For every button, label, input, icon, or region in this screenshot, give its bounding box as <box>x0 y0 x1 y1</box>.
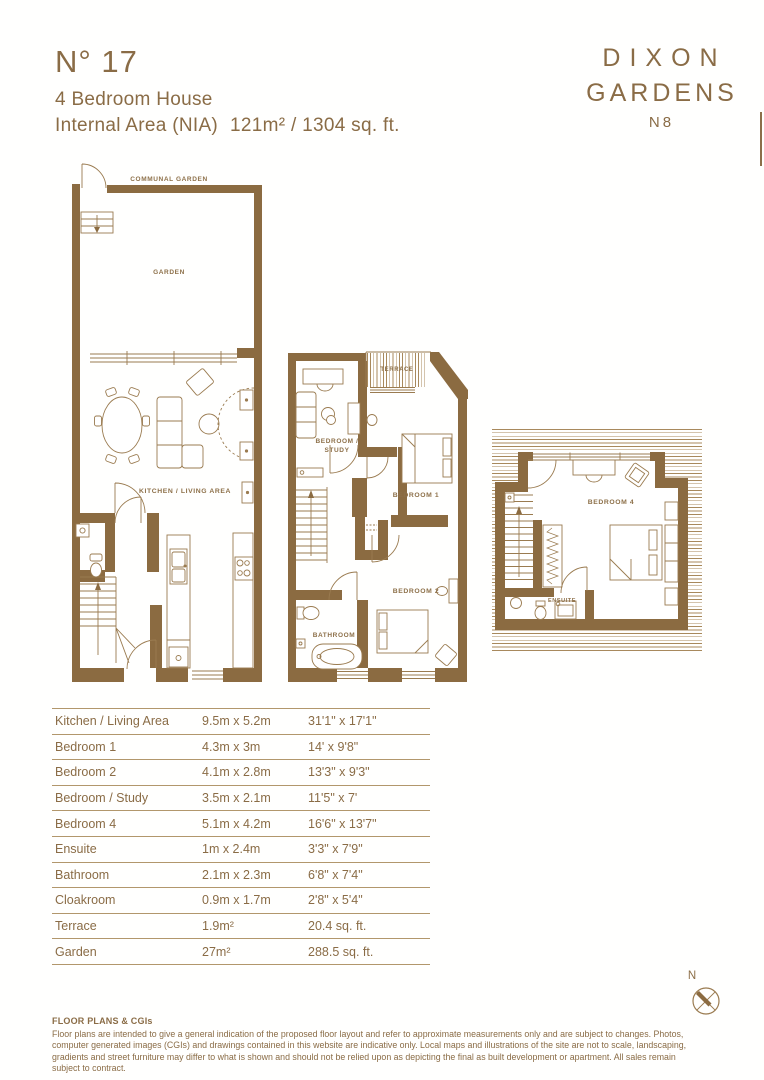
room-cell: Bedroom / Study <box>52 791 202 805</box>
bedroom1-label: BEDROOM 1 <box>393 492 440 499</box>
metric-cell: 2.1m x 2.3m <box>202 868 308 882</box>
unit-number: N° 17 <box>55 44 400 80</box>
table-row: Bedroom 14.3m x 3m14' x 9'8" <box>52 734 430 760</box>
table-row: Ensuite1m x 2.4m3'3" x 7'9" <box>52 836 430 862</box>
brand-line-2: GARDENS <box>575 79 745 108</box>
north-label: N <box>688 970 696 982</box>
metric-cell: 9.5m x 5.2m <box>202 714 308 728</box>
bathroom-label: BATHROOM <box>313 632 356 639</box>
bedroom2-label: BEDROOM 2 <box>393 588 440 595</box>
second-floor-plan: BEDROOM 4 ENSUITE <box>492 427 704 653</box>
dimensions-table: Kitchen / Living Area9.5m x 5.2m31'1" x … <box>52 708 430 965</box>
table-row: Bathroom2.1m x 2.3m6'8" x 7'4" <box>52 862 430 888</box>
page-edge-mark <box>760 112 762 166</box>
footer-body: Floor plans are intended to give a gener… <box>52 1029 700 1075</box>
bedroom1-door-swing <box>367 457 388 478</box>
compass-rose-icon <box>693 988 719 1014</box>
room-cell: Bedroom 4 <box>52 817 202 831</box>
table-row: Kitchen / Living Area9.5m x 5.2m31'1" x … <box>52 708 430 734</box>
communal-garden-label: COMMUNAL GARDEN <box>130 176 208 183</box>
metric-cell: 4.3m x 3m <box>202 740 308 754</box>
brochure-page: N° 17 4 Bedroom House Internal Area (NIA… <box>0 0 764 1080</box>
footer-disclaimer: FLOOR PLANS & CGIs Floor plans are inten… <box>52 1016 700 1075</box>
brand-logo: DIXON GARDENS N8 <box>575 44 745 131</box>
room-cell: Kitchen / Living Area <box>52 714 202 728</box>
table-row: Bedroom 24.1m x 2.8m13'3" x 9'3" <box>52 759 430 785</box>
gate-door-swing <box>82 164 106 188</box>
area-label: Internal Area (NIA) <box>55 115 218 136</box>
ensuite-label: ENSUITE <box>548 598 576 604</box>
table-row: Cloakroom0.9m x 1.7m2'8" x 5'4" <box>52 887 430 913</box>
room-cell: Garden <box>52 945 202 959</box>
imperial-cell: 20.4 sq. ft. <box>308 919 430 933</box>
brand-line-3: N8 <box>575 114 745 131</box>
room-cell: Bedroom 1 <box>52 740 202 754</box>
terrace-label: TERRACE <box>380 367 413 373</box>
room-cell: Cloakroom <box>52 893 202 907</box>
room-cell: Bedroom 2 <box>52 765 202 779</box>
metric-cell: 3.5m x 2.1m <box>202 791 308 805</box>
bedroom4-label: BEDROOM 4 <box>588 499 635 506</box>
page-title-block: N° 17 4 Bedroom House Internal Area (NIA… <box>55 44 400 137</box>
metric-cell: 0.9m x 1.7m <box>202 893 308 907</box>
cloakroom-door-swing <box>115 497 141 523</box>
room-cell: Bathroom <box>52 868 202 882</box>
metric-cell: 4.1m x 2.8m <box>202 765 308 779</box>
imperial-cell: 6'8" x 7'4" <box>308 868 430 882</box>
table-row: Garden27m²288.5 sq. ft. <box>52 938 430 965</box>
imperial-cell: 14' x 9'8" <box>308 740 430 754</box>
first-floor-plan: TERRACE BEDROOM / STUDY BEDROOM 1 BEDROO… <box>287 350 479 684</box>
imperial-cell: 13'3" x 9'3" <box>308 765 430 779</box>
imperial-cell: 31'1" x 17'1" <box>308 714 430 728</box>
house-subtitle: 4 Bedroom House <box>55 89 400 111</box>
brand-line-1: DIXON <box>575 44 745 73</box>
metric-cell: 27m² <box>202 945 308 959</box>
garden-label: GARDEN <box>153 269 185 276</box>
imperial-cell: 288.5 sq. ft. <box>308 945 430 959</box>
ground-detail <box>76 164 254 679</box>
imperial-cell: 11'5" x 7' <box>308 791 430 805</box>
footer-heading: FLOOR PLANS & CGIs <box>52 1016 700 1026</box>
metric-cell: 5.1m x 4.2m <box>202 817 308 831</box>
imperial-cell: 3'3" x 7'9" <box>308 842 430 856</box>
kitchen-living-label: KITCHEN / LIVING AREA <box>139 488 231 495</box>
room-cell: Ensuite <box>52 842 202 856</box>
bedroom-study-label-2: STUDY <box>324 447 349 454</box>
bedroom-study-label-1: BEDROOM / <box>316 438 359 445</box>
table-row: Bedroom 45.1m x 4.2m16'6" x 13'7" <box>52 810 430 836</box>
metric-cell: 1m x 2.4m <box>202 842 308 856</box>
metric-cell: 1.9m² <box>202 919 308 933</box>
table-row: Terrace1.9m²20.4 sq. ft. <box>52 913 430 939</box>
compass: N <box>678 963 734 1019</box>
ground-floor-plan: COMMUNAL GARDEN GARDEN KITCHEN / LIVING … <box>69 158 265 682</box>
imperial-cell: 2'8" x 5'4" <box>308 893 430 907</box>
table-row: Bedroom / Study3.5m x 2.1m11'5" x 7' <box>52 785 430 811</box>
room-cell: Terrace <box>52 919 202 933</box>
internal-area-line: Internal Area (NIA)121m² / 1304 sq. ft. <box>55 115 400 137</box>
area-value: 121m² / 1304 sq. ft. <box>230 115 400 136</box>
imperial-cell: 16'6" x 13'7" <box>308 817 430 831</box>
